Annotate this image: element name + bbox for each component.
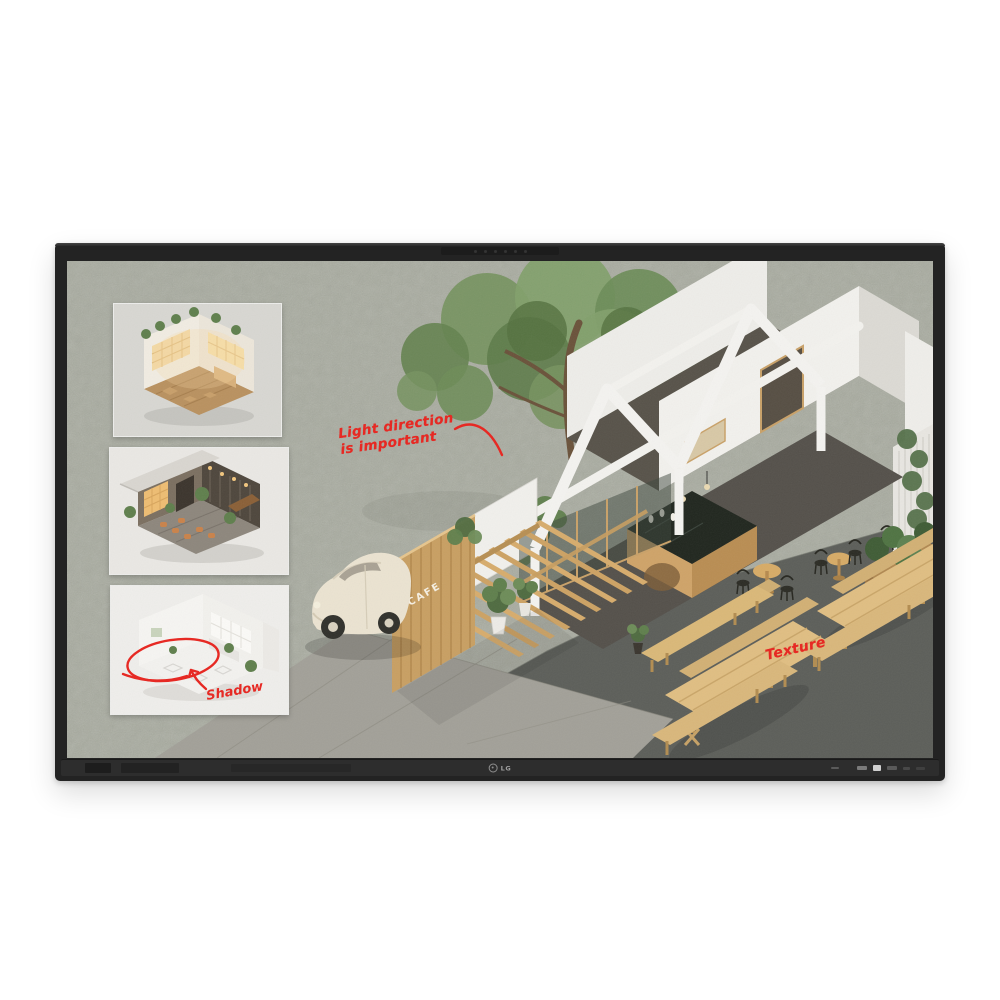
indoor-plants <box>500 496 567 566</box>
picnic-table-a <box>652 597 831 758</box>
av-port <box>916 767 925 770</box>
hdmi-port <box>887 766 897 770</box>
cafe-tables-chairs <box>737 526 894 601</box>
potted-plants <box>447 517 538 634</box>
tray-groove <box>231 764 351 772</box>
display-screen[interactable]: CAFE <box>67 261 933 758</box>
cafe-sign: CAFE <box>406 581 443 609</box>
usb-port-2 <box>873 765 881 771</box>
pen-tray-slot <box>85 763 111 773</box>
thumbnail-render-2[interactable] <box>109 447 289 575</box>
ink-arrow-curve <box>455 425 502 455</box>
back-rooms <box>567 261 933 557</box>
thumbnail-render-1[interactable] <box>113 303 282 437</box>
coffee-counter <box>627 471 757 598</box>
lg-symbol-icon <box>489 764 498 773</box>
light-direction-annotation: Light direction is important <box>337 410 457 459</box>
tree <box>362 261 741 531</box>
interior-floor <box>519 429 903 649</box>
lg-display-frame: CAFE <box>55 243 945 781</box>
front-ports <box>831 760 925 776</box>
thumbnail-render-3[interactable]: Shadow <box>110 585 289 715</box>
bottom-tray: LG <box>61 759 939 776</box>
lg-wordmark: LG <box>501 764 512 772</box>
vintage-car <box>305 553 579 725</box>
power-indicator <box>831 767 839 769</box>
texture-annotation: Texture <box>764 634 828 664</box>
hedge <box>897 429 933 529</box>
usb-port-1 <box>857 766 867 770</box>
low-benches <box>627 579 781 672</box>
touch-port <box>903 767 910 770</box>
slat-wall-cafe-sign: CAFE <box>392 515 475 693</box>
white-facade <box>473 309 859 616</box>
product-photo: CAFE <box>0 0 1000 1000</box>
speaker-slot <box>121 763 179 773</box>
lg-logo: LG <box>489 764 512 773</box>
camera-sensor-strip <box>441 247 559 255</box>
pergola <box>407 511 648 657</box>
right-planter <box>865 522 933 605</box>
